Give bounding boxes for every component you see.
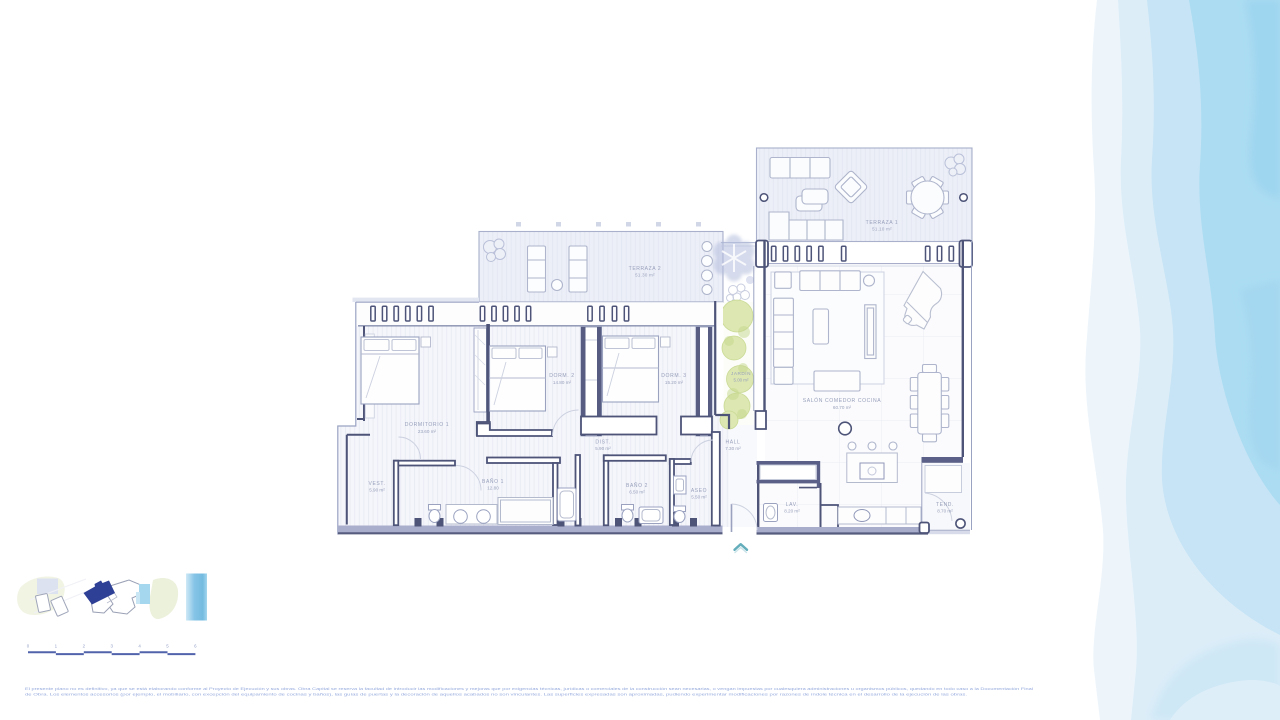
svg-text:DORMITORIO 1: DORMITORIO 1 xyxy=(405,422,449,428)
svg-text:DORM. 3: DORM. 3 xyxy=(661,373,686,379)
svg-text:15.20 m²: 15.20 m² xyxy=(665,380,684,385)
svg-text:5.50 m²: 5.50 m² xyxy=(691,495,707,500)
svg-text:12.80: 12.80 xyxy=(487,486,499,491)
svg-text:DORM. 2: DORM. 2 xyxy=(549,373,574,379)
svg-text:LAV.: LAV. xyxy=(786,502,798,508)
svg-text:5.00 m²: 5.00 m² xyxy=(734,378,749,383)
svg-text:5.90 m²: 5.90 m² xyxy=(369,488,385,493)
svg-text:DIST.: DIST. xyxy=(595,440,610,446)
svg-text:7.30 m²: 7.30 m² xyxy=(725,446,741,451)
svg-text:El presente plano no es defini: El presente plano no es definitivo, ya q… xyxy=(25,686,1033,691)
svg-text:51.30 m²: 51.30 m² xyxy=(635,273,655,278)
svg-text:BAÑO 1: BAÑO 1 xyxy=(482,478,504,485)
svg-text:TERRAZA 2: TERRAZA 2 xyxy=(629,266,662,272)
svg-text:14.80 m²: 14.80 m² xyxy=(553,380,572,385)
svg-text:BAÑO 2: BAÑO 2 xyxy=(626,482,648,489)
svg-text:TERRAZA 1: TERRAZA 1 xyxy=(866,220,899,226)
svg-text:ASEO: ASEO xyxy=(691,488,707,494)
svg-text:HALL: HALL xyxy=(726,440,741,446)
svg-text:51.10 m²: 51.10 m² xyxy=(872,227,892,232)
svg-text:8.70 m²: 8.70 m² xyxy=(937,509,953,514)
svg-text:SALÓN COMEDOR COCINA: SALÓN COMEDOR COCINA xyxy=(803,397,882,404)
svg-text:8.20 m²: 8.20 m² xyxy=(784,509,800,514)
svg-text:JARDÍN: JARDÍN xyxy=(731,370,751,376)
svg-text:5.90 m²: 5.90 m² xyxy=(595,446,611,451)
svg-text:23.60 m²: 23.60 m² xyxy=(418,429,437,434)
svg-text:TEND.: TEND. xyxy=(936,502,954,508)
svg-text:de Obra. Los elementos accesor: de Obra. Los elementos accesorios (por e… xyxy=(25,691,967,696)
svg-text:6.50 m²: 6.50 m² xyxy=(629,490,645,495)
svg-text:60.70 m²: 60.70 m² xyxy=(833,405,852,410)
svg-text:VEST.: VEST. xyxy=(369,481,386,487)
